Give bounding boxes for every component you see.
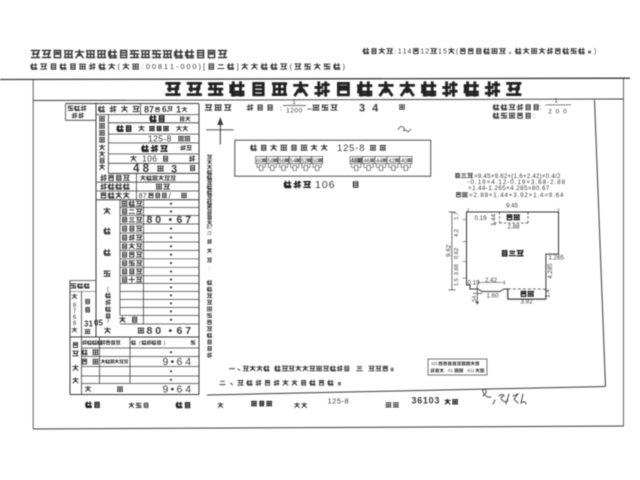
svg-text:•: • <box>171 356 175 368</box>
svg-text:5: 5 <box>443 49 447 56</box>
svg-text:1: 1 <box>170 62 174 71</box>
svg-text:0: 0 <box>180 62 184 71</box>
svg-text:): ) <box>594 49 596 56</box>
svg-text:1.7: 1.7 <box>454 212 460 220</box>
svg-text:4.285: 4.285 <box>547 263 554 279</box>
svg-text:8 0: 8 0 <box>147 325 162 337</box>
svg-text:6 4: 6 4 <box>177 356 192 368</box>
svg-text:6 4: 6 4 <box>177 384 192 396</box>
svg-text:(: ( <box>107 287 109 293</box>
svg-text:): ) <box>107 318 109 324</box>
svg-text:0: 0 <box>186 62 190 71</box>
svg-text:3.68: 3.68 <box>454 264 460 275</box>
svg-text:1.265: 1.265 <box>549 255 565 262</box>
svg-text:1200: 1200 <box>286 108 303 115</box>
svg-text::: : <box>533 113 535 120</box>
svg-text:6 7: 6 7 <box>177 214 192 226</box>
svg-text:=2.88×1.44+3.92×1.4=9.64: =2.88×1.44+3.92×1.4=9.64 <box>469 192 564 199</box>
svg-text:9.45: 9.45 <box>506 203 519 210</box>
svg-text:58: 58 <box>267 158 273 164</box>
svg-text:8: 8 <box>158 62 162 71</box>
svg-text:1: 1 <box>420 49 424 56</box>
svg-text:9.62: 9.62 <box>445 244 452 257</box>
svg-text:05: 05 <box>94 319 103 328</box>
svg-text:56: 56 <box>279 158 285 164</box>
svg-text:87: 87 <box>144 104 154 114</box>
svg-text:87.: 87. <box>139 191 149 200</box>
svg-text:125-8: 125-8 <box>148 133 172 143</box>
svg-text:/2: /2 <box>207 231 212 237</box>
svg-text:1.60: 1.60 <box>486 292 499 299</box>
svg-text::: : <box>280 106 282 113</box>
svg-text:101: 101 <box>431 361 439 366</box>
svg-text:54: 54 <box>290 158 297 164</box>
svg-text:8 0: 8 0 <box>147 214 162 226</box>
svg-text:0.62: 0.62 <box>454 248 460 259</box>
svg-text:3: 3 <box>171 163 177 175</box>
svg-text:44: 44 <box>376 158 383 164</box>
svg-text::: : <box>540 105 542 112</box>
svg-text:•: • <box>169 214 173 226</box>
svg-text:0: 0 <box>146 62 150 71</box>
svg-text:52: 52 <box>301 158 307 164</box>
svg-text:40: 40 <box>401 158 407 164</box>
svg-text:0: 0 <box>192 62 196 71</box>
svg-text:125-8: 125-8 <box>337 143 365 154</box>
svg-text:0.19: 0.19 <box>468 279 481 286</box>
svg-text:3.92: 3.92 <box>520 298 533 305</box>
svg-text:9: 9 <box>163 384 169 396</box>
svg-text:0.19: 0.19 <box>475 215 488 222</box>
svg-text:60: 60 <box>256 158 262 164</box>
svg-text:2 0 0: 2 0 0 <box>548 109 567 116</box>
svg-text::: : <box>142 62 144 71</box>
svg-text:9: 9 <box>163 356 169 368</box>
svg-text:•: • <box>169 325 173 337</box>
svg-text:4: 4 <box>408 49 412 56</box>
svg-text:1: 1 <box>438 49 442 56</box>
svg-text:2.88: 2.88 <box>507 223 520 230</box>
svg-text:(: ( <box>139 340 141 346</box>
svg-text:50: 50 <box>312 158 318 164</box>
svg-text:•: • <box>171 384 175 396</box>
svg-text::: : <box>394 49 396 56</box>
svg-text:]: ] <box>237 62 239 71</box>
svg-text:42: 42 <box>388 158 394 164</box>
svg-text:36103: 36103 <box>412 396 441 406</box>
svg-text:1.5: 1.5 <box>454 278 460 286</box>
svg-text:01: 01 <box>448 368 453 373</box>
svg-text:106: 106 <box>142 153 157 163</box>
svg-text:125-8: 125-8 <box>328 396 350 405</box>
svg-text:2: 2 <box>425 49 429 56</box>
svg-text:1: 1 <box>398 49 402 56</box>
svg-text:4 8: 4 8 <box>133 163 150 175</box>
svg-text:1.44: 1.44 <box>490 213 497 226</box>
svg-text:): ) <box>164 340 166 346</box>
svg-text:31: 31 <box>84 320 93 329</box>
svg-text:46: 46 <box>364 158 370 164</box>
svg-text:1: 1 <box>176 105 181 115</box>
svg-text:3 4: 3 4 <box>359 103 380 115</box>
svg-text::: : <box>209 266 210 272</box>
svg-text:1: 1 <box>164 62 168 71</box>
svg-text:1: 1 <box>403 49 407 56</box>
svg-text:1.4: 1.4 <box>545 289 552 298</box>
svg-text:6 7: 6 7 <box>177 325 192 337</box>
svg-text:811: 811 <box>468 368 475 373</box>
svg-text:0: 0 <box>152 62 156 71</box>
svg-text:106: 106 <box>315 179 336 191</box>
svg-text:4.2: 4.2 <box>454 229 460 237</box>
svg-text:2.42: 2.42 <box>485 277 498 284</box>
